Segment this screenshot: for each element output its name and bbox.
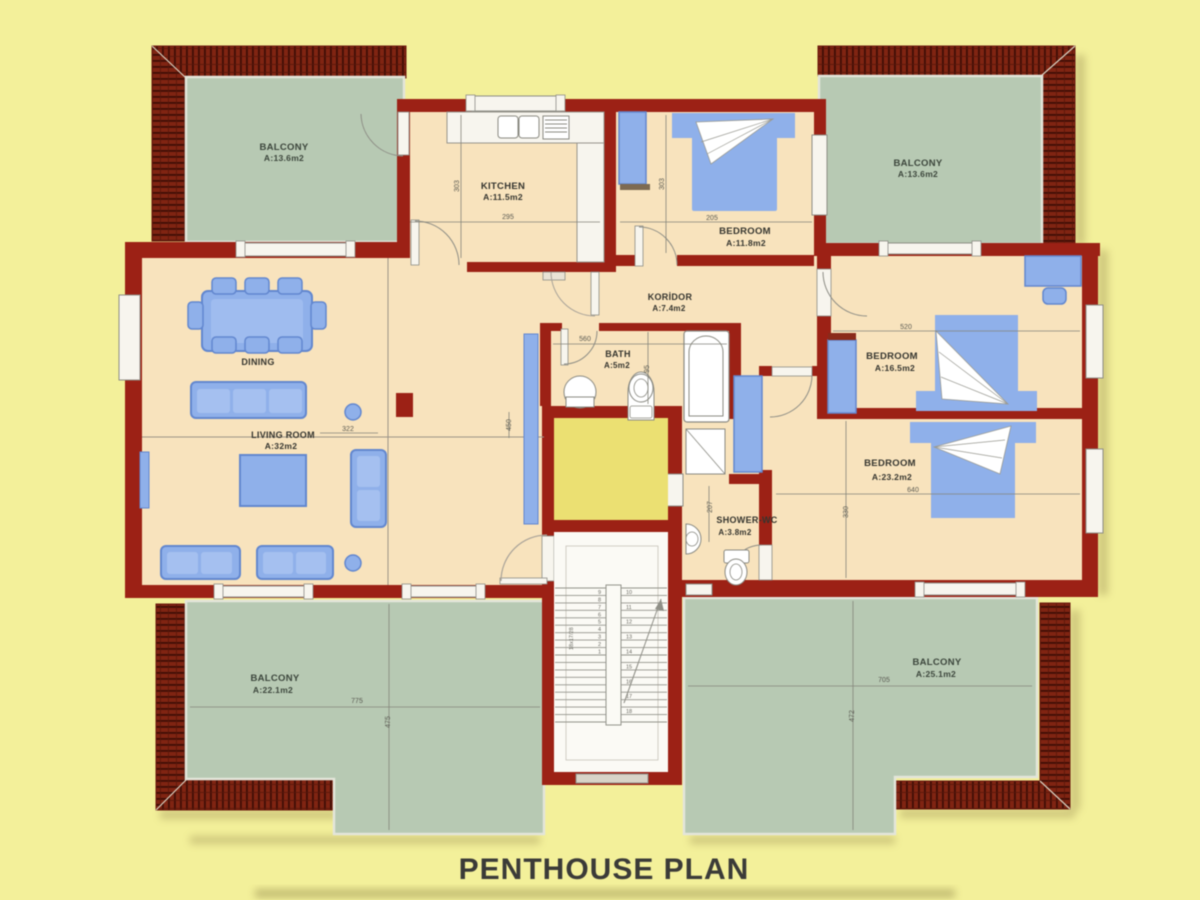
svg-text:705: 705: [878, 677, 890, 684]
svg-text:322: 322: [342, 426, 354, 433]
svg-text:A:3.8m2: A:3.8m2: [718, 528, 751, 537]
svg-text:BEDROOM: BEDROOM: [866, 351, 918, 362]
svg-text:DINING: DINING: [241, 357, 274, 367]
svg-text:A:5m2: A:5m2: [604, 361, 630, 370]
svg-text:BALCONY: BALCONY: [912, 657, 961, 668]
svg-text:BALCONY: BALCONY: [893, 158, 942, 169]
svg-text:13: 13: [626, 635, 632, 641]
svg-text:A:7.4m2: A:7.4m2: [652, 304, 685, 313]
svg-text:KITCHEN: KITCHEN: [481, 181, 525, 192]
svg-text:8: 8: [598, 597, 601, 603]
svg-text:7: 7: [598, 605, 601, 611]
svg-text:560: 560: [579, 336, 591, 343]
svg-text:330: 330: [843, 506, 850, 518]
svg-text:18: 18: [626, 709, 632, 715]
svg-text:9: 9: [598, 590, 601, 596]
svg-text:11: 11: [626, 605, 632, 611]
svg-text:A:22.1m2: A:22.1m2: [253, 685, 293, 695]
svg-text:520: 520: [900, 324, 912, 331]
svg-text:640: 640: [907, 487, 919, 494]
svg-text:475: 475: [385, 716, 392, 728]
svg-text:A:25.1m2: A:25.1m2: [916, 669, 956, 679]
svg-text:5: 5: [598, 620, 601, 626]
svg-text:15: 15: [626, 664, 632, 670]
svg-text:12: 12: [626, 620, 632, 626]
svg-text:KORİDOR: KORİDOR: [648, 292, 693, 302]
svg-text:LIVING ROOM: LIVING ROOM: [251, 430, 315, 440]
svg-text:303: 303: [659, 178, 666, 190]
svg-text:A:11.8m2: A:11.8m2: [726, 238, 766, 248]
svg-text:BEDROOM: BEDROOM: [719, 226, 771, 237]
svg-text:6: 6: [598, 612, 601, 618]
svg-text:PENTHOUSE PLAN: PENTHOUSE PLAN: [459, 853, 750, 886]
svg-text:A:16.5m2: A:16.5m2: [875, 363, 915, 373]
svg-text:205: 205: [706, 215, 718, 222]
svg-text:A:11.5m2: A:11.5m2: [483, 192, 523, 202]
svg-text:BATH: BATH: [605, 349, 631, 359]
svg-text:18x17/28: 18x17/28: [569, 627, 575, 650]
svg-text:2: 2: [598, 642, 601, 648]
svg-text:A:32m2: A:32m2: [265, 441, 298, 451]
svg-text:BEDROOM: BEDROOM: [864, 458, 916, 469]
svg-text:10: 10: [626, 590, 632, 596]
svg-text:BALCONY: BALCONY: [259, 142, 308, 153]
svg-text:3: 3: [598, 635, 601, 641]
svg-text:472: 472: [849, 710, 856, 722]
svg-text:1: 1: [598, 650, 601, 656]
svg-text:A:13.6m2: A:13.6m2: [264, 153, 304, 163]
svg-text:303: 303: [454, 180, 461, 192]
svg-text:BALCONY: BALCONY: [250, 673, 299, 684]
svg-text:SHOWER-WC: SHOWER-WC: [716, 515, 777, 525]
svg-text:775: 775: [351, 698, 363, 705]
svg-text:295: 295: [502, 214, 514, 221]
svg-text:450: 450: [506, 419, 513, 431]
svg-text:A:13.6m2: A:13.6m2: [898, 169, 938, 179]
svg-text:A:23.2m2: A:23.2m2: [872, 472, 912, 482]
svg-text:4: 4: [598, 627, 601, 633]
svg-text:207: 207: [707, 501, 714, 513]
svg-text:95: 95: [644, 365, 651, 373]
svg-text:14: 14: [626, 650, 632, 656]
